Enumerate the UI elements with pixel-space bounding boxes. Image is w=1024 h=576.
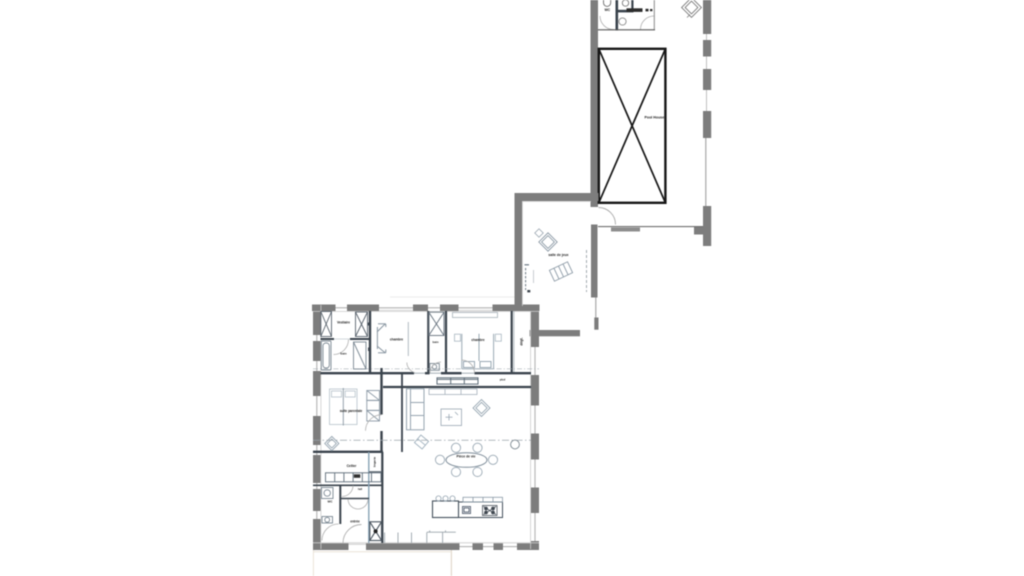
svg-text:Cellier: Cellier (347, 464, 358, 468)
svg-text:suite parentale: suite parentale (340, 409, 363, 413)
svg-text:lingerie: lingerie (372, 456, 376, 467)
svg-text:entrée: entrée (350, 519, 360, 523)
svg-text:chambre: chambre (471, 338, 485, 342)
svg-text:plcd: plcd (500, 377, 506, 381)
svg-text:dégt.: dégt. (520, 337, 524, 345)
svg-text:bain: bain (340, 352, 346, 356)
svg-text:WC: WC (328, 500, 334, 504)
svg-text:bain: bain (433, 340, 439, 344)
svg-text:Pièce de vie: Pièce de vie (457, 455, 476, 459)
svg-text:Vestiaire: Vestiaire (337, 321, 350, 325)
svg-text:chambre: chambre (390, 338, 404, 342)
svg-text:salle de jeux: salle de jeux (548, 253, 568, 257)
svg-text:Pool House: Pool House (645, 116, 665, 120)
svg-text:WC: WC (604, 8, 610, 12)
svg-text:hall: hall (358, 488, 362, 491)
